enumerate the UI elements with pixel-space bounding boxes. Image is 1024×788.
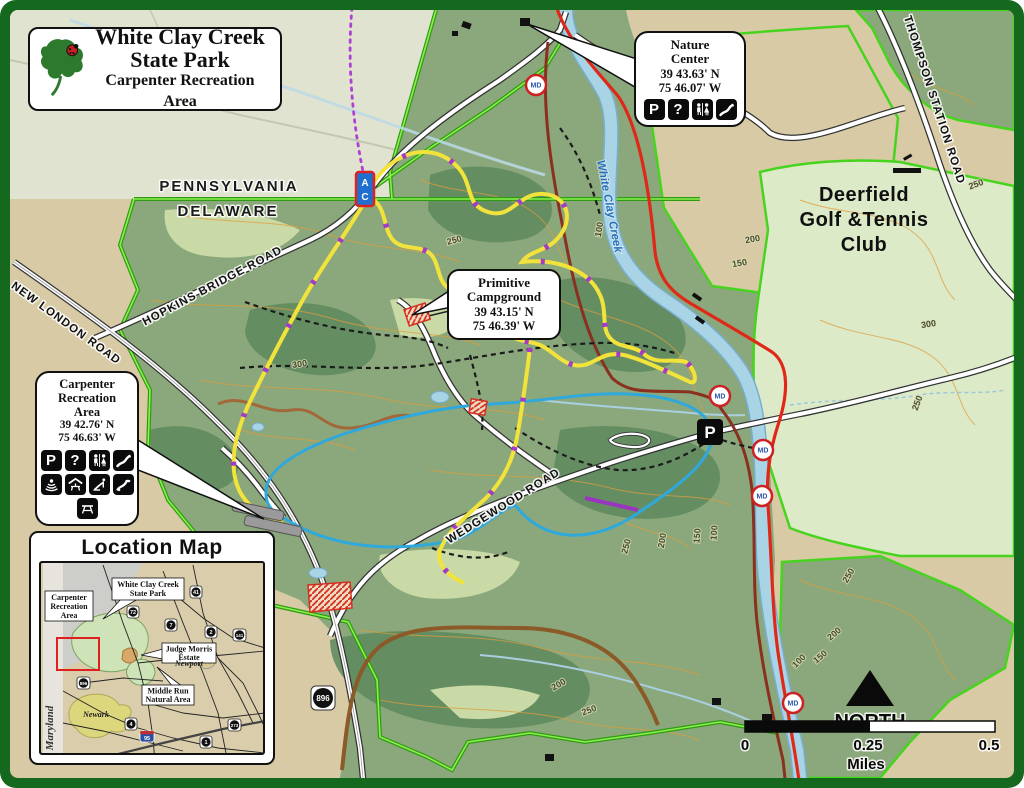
restrooms-icon <box>89 450 110 471</box>
svg-text:White Clay Creek: White Clay Creek <box>117 580 179 589</box>
svg-text:MD: MD <box>788 701 799 708</box>
svg-text:41: 41 <box>193 590 199 596</box>
inset-title: Location Map <box>31 535 273 560</box>
latitude: 39 43.63' N <box>640 67 740 81</box>
svg-text:State Park: State Park <box>130 589 167 598</box>
interstate-95-shield: 95 <box>140 731 154 742</box>
pond <box>431 392 449 403</box>
callout-title: Area <box>40 406 134 420</box>
park-map-page: MD MD MD MD MD A C P 896 PENNSYLVANIA <box>0 0 1024 788</box>
nature-center-callout: Nature Center 39 43.63' N 75 46.07' W P … <box>634 31 746 127</box>
primitive-campground-callout: Primitive Campground 39 43.15' N 75 46.3… <box>447 269 561 340</box>
svg-text:7: 7 <box>169 623 172 629</box>
callout-title: Recreation <box>40 392 134 406</box>
route-72-shield: 72 <box>127 606 139 618</box>
callout-title: Center <box>640 52 740 66</box>
svg-text:MD: MD <box>531 83 542 90</box>
inset-map: Carpenter Recreation Area White Clay Cre… <box>39 561 265 755</box>
leaf-logo-icon <box>36 35 88 104</box>
latitude: 39 43.15' N <box>453 305 555 319</box>
route-7-shield: 7 <box>165 619 177 631</box>
md-trail-marker: MD <box>783 693 803 713</box>
trailhead-icon <box>113 450 134 471</box>
amphitheater-icon <box>41 474 62 495</box>
svg-text:MD: MD <box>758 448 769 455</box>
route-896-shield: 896 <box>311 686 335 710</box>
svg-text:896: 896 <box>80 681 88 686</box>
md-trail-marker: MD <box>752 486 772 506</box>
state-label-pennsylvania: PENNSYLVANIA <box>159 178 298 195</box>
svg-text:896: 896 <box>316 694 330 703</box>
callout-title: Nature <box>640 38 740 52</box>
pond <box>252 423 264 431</box>
svg-text:Area: Area <box>61 611 78 620</box>
svg-text:100: 100 <box>708 525 719 541</box>
information-icon: ? <box>668 99 689 120</box>
svg-text:2: 2 <box>209 630 212 636</box>
route-273-shield: 273 <box>228 719 241 731</box>
svg-text:141: 141 <box>236 633 244 638</box>
svg-text:1: 1 <box>204 740 207 746</box>
inset-newark-label: Newark <box>82 710 109 719</box>
carpenter-recreation-callout: Carpenter Recreation Area 39 42.76' N 75… <box>35 371 139 526</box>
svg-text:MD: MD <box>757 494 768 501</box>
svg-text:273: 273 <box>231 723 239 728</box>
scale-unit: Miles <box>847 756 885 773</box>
svg-text:MD: MD <box>715 394 726 401</box>
route-1-shield: 1 <box>200 736 212 748</box>
deerfield-label: Club <box>841 234 887 256</box>
park-title-line2: State Park <box>88 48 272 71</box>
park-title-line1: White Clay Creek <box>88 25 272 48</box>
route-4-shield: 4 <box>125 718 137 730</box>
information-icon: ? <box>65 450 86 471</box>
state-label-delaware: DELAWARE <box>177 203 278 220</box>
route-141-shield: 141 <box>233 629 246 641</box>
inset-maryland-label: Maryland <box>44 705 56 751</box>
svg-text:Natural Area: Natural Area <box>146 695 191 704</box>
svg-text:95: 95 <box>144 736 150 742</box>
parking-sign: P <box>697 419 723 445</box>
md-trail-marker: MD <box>526 75 546 95</box>
deerfield-label: Golf &Tennis <box>800 209 929 231</box>
svg-text:P: P <box>704 423 715 442</box>
md-trail-marker: MD <box>753 440 773 460</box>
svg-text:72: 72 <box>130 610 136 616</box>
svg-text:Recreation: Recreation <box>50 602 88 611</box>
route-896-shield: 896 <box>77 677 90 689</box>
parking-icon: P <box>644 99 665 120</box>
playground-icon <box>89 474 110 495</box>
callout-title: Carpenter <box>40 378 134 392</box>
callout-title: Primitive <box>453 276 555 290</box>
latitude: 39 42.76' N <box>40 419 134 432</box>
inset-newport-label: Newport <box>174 659 204 668</box>
svg-text:Carpenter: Carpenter <box>51 593 87 602</box>
svg-text:C: C <box>361 192 368 203</box>
md-trail-marker: MD <box>710 386 730 406</box>
svg-text:0.25: 0.25 <box>853 737 882 754</box>
callout-title: Campground <box>453 290 555 304</box>
trail-marker-ac: A C <box>356 172 374 206</box>
location-map-inset: Location Map <box>29 531 275 765</box>
svg-text:300: 300 <box>291 358 307 370</box>
park-subtitle: Carpenter Recreation Area <box>88 71 272 113</box>
picnic-area-icon <box>77 498 98 519</box>
map-title-box: White Clay Creek State Park Carpenter Re… <box>28 27 282 111</box>
svg-text:0.5: 0.5 <box>979 737 1000 754</box>
route-2-shield: 2 <box>205 626 217 638</box>
restrooms-icon <box>692 99 713 120</box>
deerfield-label: Deerfield <box>819 184 909 206</box>
longitude: 75 46.63' W <box>40 432 134 445</box>
disc-golf-icon <box>113 474 134 495</box>
svg-text:A: A <box>361 178 368 189</box>
pond <box>309 568 327 578</box>
svg-text:150: 150 <box>691 528 702 544</box>
parking-icon: P <box>41 450 62 471</box>
deerfield-building <box>893 168 921 173</box>
pavilion-icon <box>65 474 86 495</box>
route-41-shield: 41 <box>190 586 202 598</box>
longitude: 75 46.39' W <box>453 319 555 333</box>
svg-text:0: 0 <box>741 737 749 754</box>
longitude: 75 46.07' W <box>640 81 740 95</box>
trailhead-icon <box>716 99 737 120</box>
